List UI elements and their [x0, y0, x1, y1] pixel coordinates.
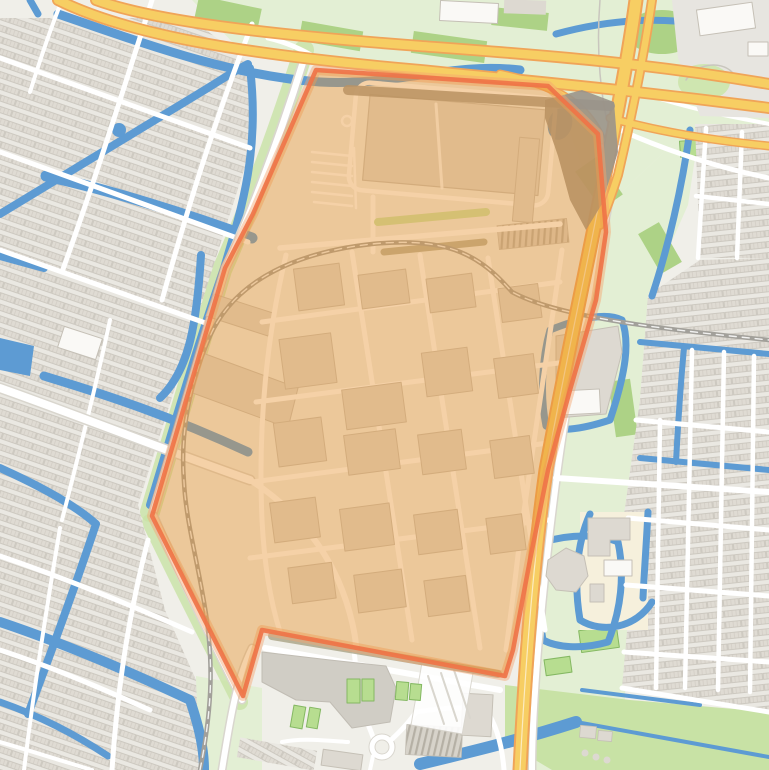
small-house: [598, 730, 613, 741]
map-viewport: [0, 0, 769, 770]
map-canvas[interactable]: [0, 0, 769, 770]
green-shed: [362, 679, 374, 701]
tree: [604, 757, 611, 764]
green-shed: [409, 684, 421, 701]
campus-building-white: [604, 560, 632, 576]
building-white: [748, 42, 768, 56]
green-shed: [347, 679, 360, 703]
sport-field: [544, 656, 572, 675]
tree: [593, 754, 600, 761]
green-shed: [395, 682, 409, 701]
industrial-road: [282, 740, 348, 742]
small-house: [580, 725, 597, 738]
tree: [582, 750, 589, 757]
building: [504, 0, 546, 15]
building-white: [440, 0, 499, 23]
campus-building: [590, 584, 604, 602]
